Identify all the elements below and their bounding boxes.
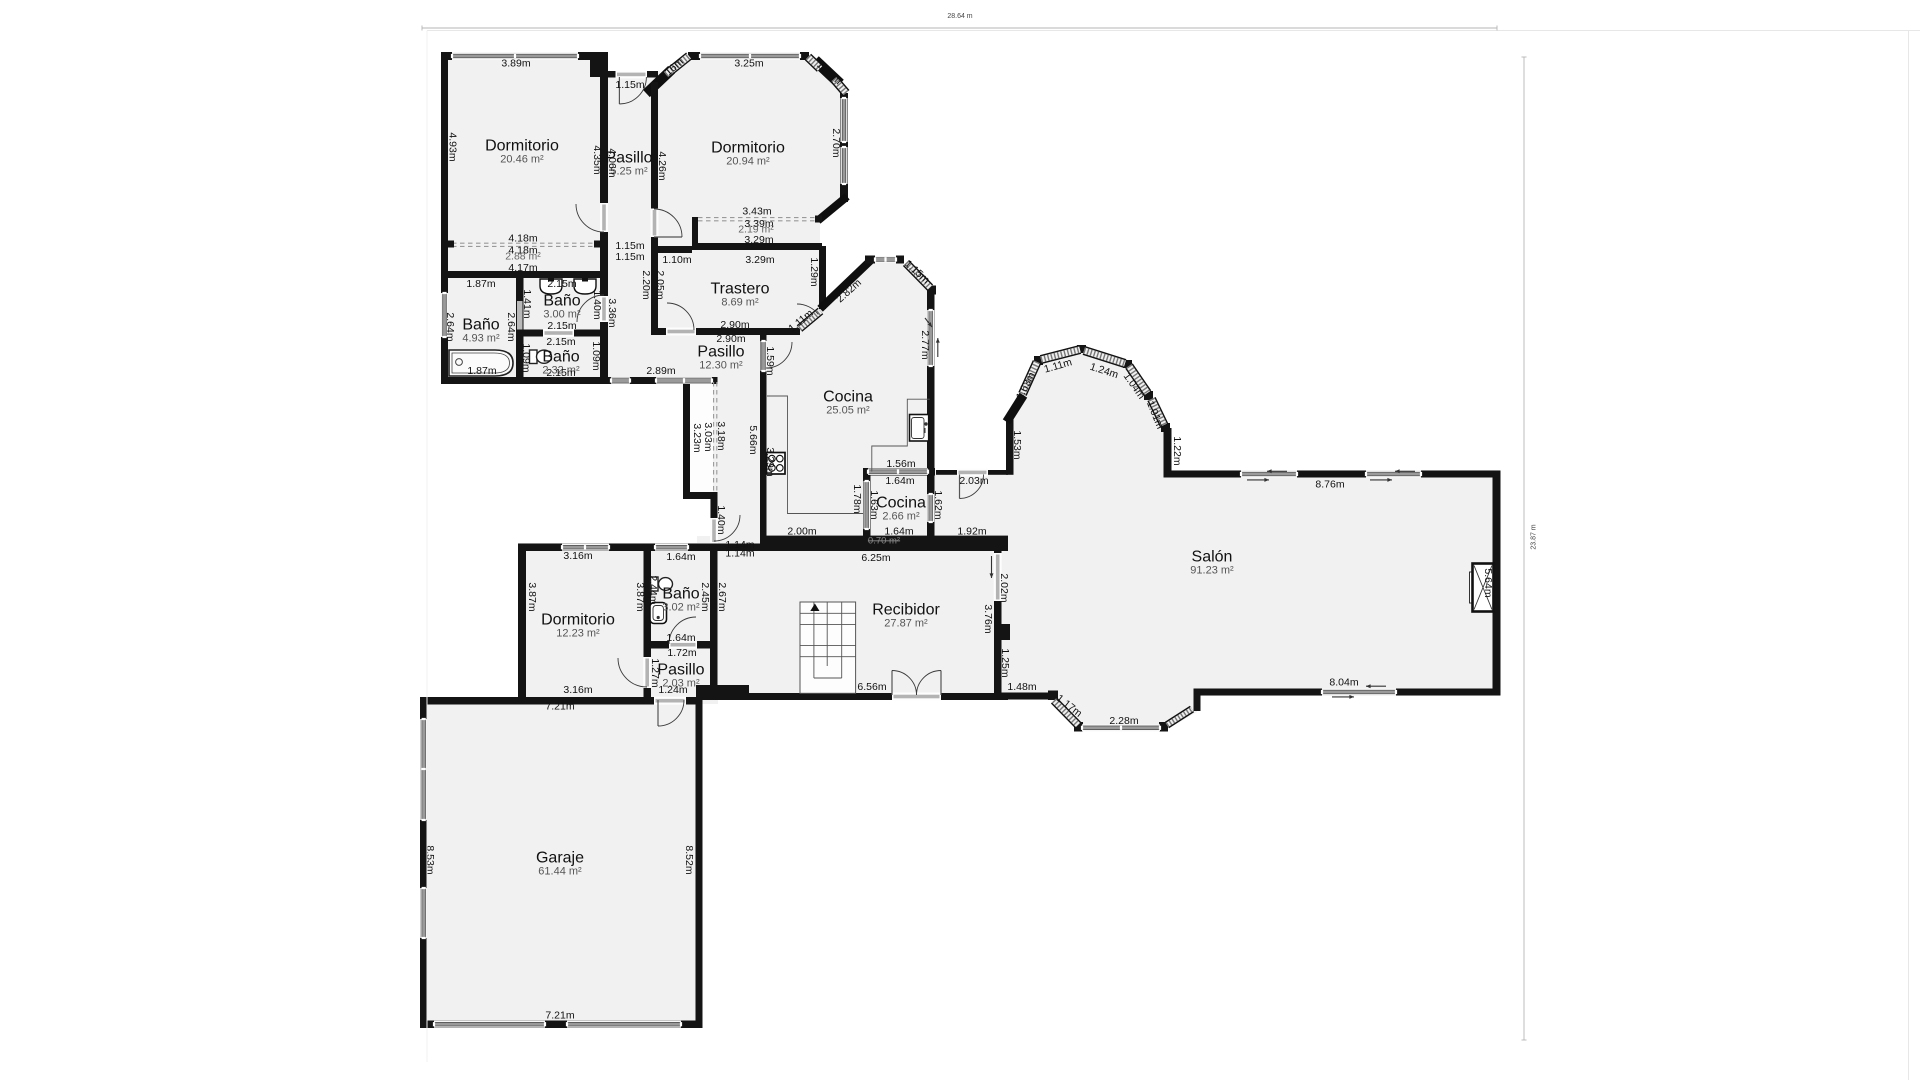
svg-text:3.16m: 3.16m	[563, 550, 592, 562]
svg-text:27.87 m²: 27.87 m²	[884, 618, 928, 630]
svg-text:4.93 m²: 4.93 m²	[462, 333, 500, 345]
svg-text:Trastero: Trastero	[711, 281, 770, 298]
svg-text:1.14m: 1.14m	[725, 548, 754, 560]
svg-text:3.87m: 3.87m	[526, 582, 538, 611]
svg-text:Salón: Salón	[1192, 549, 1233, 566]
svg-text:6.25m: 6.25m	[861, 552, 890, 564]
svg-text:2.64m: 2.64m	[444, 312, 456, 341]
svg-text:Baño: Baño	[542, 349, 579, 366]
svg-text:1.64m: 1.64m	[666, 632, 695, 644]
svg-text:8.53m: 8.53m	[424, 845, 436, 874]
svg-text:2.15m: 2.15m	[546, 367, 575, 379]
svg-text:2.15m: 2.15m	[547, 278, 576, 290]
svg-text:3.29m: 3.29m	[764, 447, 776, 476]
svg-text:2.45m: 2.45m	[699, 582, 711, 611]
svg-text:2.44m: 2.44m	[647, 575, 659, 604]
svg-text:12.23 m²: 12.23 m²	[556, 628, 600, 640]
svg-text:1.87m: 1.87m	[467, 365, 496, 377]
svg-text:1.41m: 1.41m	[521, 289, 533, 318]
svg-text:2.15m: 2.15m	[546, 336, 575, 348]
svg-text:2.64m: 2.64m	[505, 312, 517, 341]
svg-text:61.44 m²: 61.44 m²	[538, 866, 582, 878]
svg-text:1.29m: 1.29m	[808, 257, 820, 286]
svg-text:1.22m: 1.22m	[1171, 436, 1183, 465]
svg-text:1.56m: 1.56m	[886, 458, 915, 470]
svg-text:4.18m: 4.18m	[508, 233, 537, 245]
svg-text:0.70 m²: 0.70 m²	[868, 536, 900, 547]
svg-text:3.16m: 3.16m	[563, 684, 592, 696]
svg-text:20.94 m²: 20.94 m²	[726, 156, 770, 168]
svg-text:7.21m: 7.21m	[545, 701, 574, 713]
svg-text:2.19 m²: 2.19 m²	[738, 224, 774, 236]
svg-text:2.05m: 2.05m	[654, 270, 666, 299]
svg-text:1.62m: 1.62m	[932, 490, 944, 519]
svg-text:1.25m: 1.25m	[999, 648, 1011, 677]
svg-text:Pasillo: Pasillo	[697, 344, 744, 361]
svg-text:Baño: Baño	[543, 293, 580, 310]
svg-text:3.00 m²: 3.00 m²	[543, 309, 581, 321]
svg-text:Recibidor: Recibidor	[872, 602, 940, 619]
svg-text:2.90m: 2.90m	[720, 319, 749, 331]
svg-text:2.15m: 2.15m	[547, 320, 576, 332]
svg-text:2.89m: 2.89m	[646, 365, 675, 377]
svg-text:3.18m: 3.18m	[715, 421, 727, 450]
svg-text:1.92m: 1.92m	[957, 526, 986, 538]
svg-text:8.69 m²: 8.69 m²	[721, 297, 759, 309]
svg-text:4.06m: 4.06m	[606, 148, 618, 177]
svg-text:1.72m: 1.72m	[667, 647, 696, 659]
svg-text:Cocina: Cocina	[823, 389, 873, 406]
svg-text:Dormitorio: Dormitorio	[541, 612, 615, 629]
svg-text:1.64m: 1.64m	[885, 475, 914, 487]
svg-text:4.93m: 4.93m	[447, 132, 459, 161]
svg-text:5.64m: 5.64m	[1482, 568, 1494, 597]
svg-text:1.40m: 1.40m	[591, 290, 603, 319]
svg-text:2.00m: 2.00m	[787, 526, 816, 538]
svg-text:1.87m: 1.87m	[466, 278, 495, 290]
svg-text:3.89m: 3.89m	[501, 58, 530, 70]
svg-text:2.70m: 2.70m	[830, 128, 842, 157]
svg-text:2.66 m²: 2.66 m²	[882, 511, 920, 523]
svg-text:3.23m: 3.23m	[691, 423, 703, 452]
svg-text:Pasillo: Pasillo	[657, 662, 704, 679]
svg-text:1.09m: 1.09m	[520, 343, 532, 372]
svg-text:1.59m: 1.59m	[764, 346, 776, 375]
svg-text:1.27m: 1.27m	[649, 658, 661, 687]
svg-text:8.76m: 8.76m	[1315, 479, 1344, 491]
svg-text:4.35m: 4.35m	[591, 145, 603, 174]
svg-text:1.78m: 1.78m	[851, 484, 863, 513]
svg-text:3.25m: 3.25m	[734, 58, 763, 70]
svg-text:91.23 m²: 91.23 m²	[1190, 565, 1234, 577]
svg-text:3.87m: 3.87m	[634, 582, 646, 611]
svg-text:25.05 m²: 25.05 m²	[826, 405, 870, 417]
svg-text:2.90m: 2.90m	[716, 333, 745, 345]
svg-text:Cocina: Cocina	[876, 495, 926, 512]
svg-text:2.20m: 2.20m	[640, 270, 652, 299]
svg-text:20.46 m²: 20.46 m²	[500, 154, 544, 166]
svg-text:1.15m: 1.15m	[615, 251, 644, 263]
svg-text:5.66m: 5.66m	[747, 425, 759, 454]
svg-text:1.64m: 1.64m	[666, 551, 695, 563]
svg-text:1.40m: 1.40m	[715, 505, 727, 534]
svg-text:6.56m: 6.56m	[857, 681, 886, 693]
svg-text:28.64 m: 28.64 m	[947, 13, 972, 20]
svg-text:8.52m: 8.52m	[683, 845, 695, 874]
svg-text:Garaje: Garaje	[536, 850, 584, 867]
svg-text:3.02 m²: 3.02 m²	[662, 602, 700, 614]
svg-text:2.02m: 2.02m	[998, 573, 1010, 602]
svg-text:23.87 m: 23.87 m	[1531, 524, 1538, 549]
svg-text:1.53m: 1.53m	[1011, 430, 1023, 459]
svg-text:3.76m: 3.76m	[982, 604, 994, 633]
svg-text:8.04m: 8.04m	[1329, 677, 1358, 689]
svg-text:1.10m: 1.10m	[662, 254, 691, 266]
svg-text:3.43m: 3.43m	[742, 206, 771, 218]
svg-text:12.30 m²: 12.30 m²	[699, 360, 743, 372]
svg-text:Dormitorio: Dormitorio	[711, 140, 785, 157]
svg-text:2.67m: 2.67m	[716, 582, 728, 611]
svg-text:2.88 m²: 2.88 m²	[505, 251, 541, 263]
svg-text:1.24m: 1.24m	[658, 684, 687, 696]
svg-text:3.29m: 3.29m	[744, 234, 773, 246]
svg-text:Baño: Baño	[462, 317, 499, 334]
svg-text:1.15m: 1.15m	[615, 79, 644, 91]
svg-text:2.03m: 2.03m	[959, 475, 988, 487]
svg-text:7.21m: 7.21m	[545, 1010, 574, 1022]
svg-text:2.77m: 2.77m	[919, 330, 931, 359]
svg-text:2.28m: 2.28m	[1109, 715, 1138, 727]
svg-text:1.63m: 1.63m	[868, 490, 880, 519]
svg-text:4.26m: 4.26m	[656, 151, 668, 180]
svg-text:1.09m: 1.09m	[590, 341, 602, 370]
svg-text:3.36m: 3.36m	[606, 298, 618, 327]
svg-text:3.29m: 3.29m	[745, 254, 774, 266]
svg-text:Baño: Baño	[662, 586, 699, 603]
svg-text:4.17m: 4.17m	[508, 262, 537, 274]
svg-text:Dormitorio: Dormitorio	[485, 138, 559, 155]
svg-text:1.48m: 1.48m	[1007, 681, 1036, 693]
